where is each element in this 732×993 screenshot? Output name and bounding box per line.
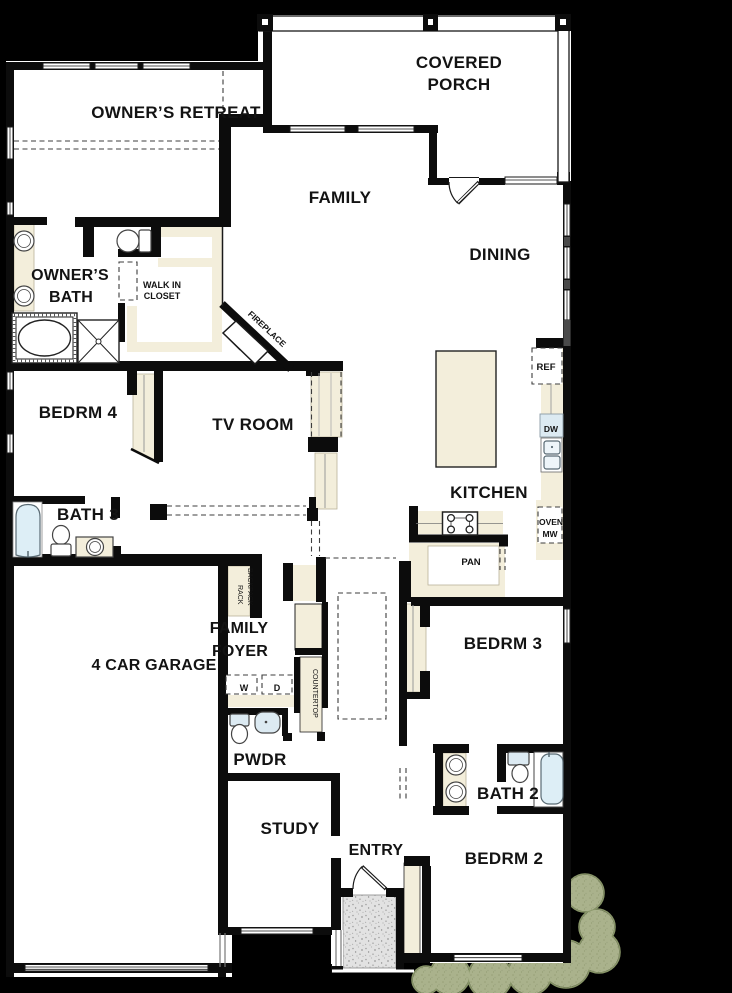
svg-text:MW: MW	[542, 529, 558, 539]
svg-text:FAMILY: FAMILY	[309, 188, 372, 207]
svg-text:BEDRM 3: BEDRM 3	[464, 634, 543, 653]
svg-text:BATH 3: BATH 3	[57, 505, 119, 524]
svg-text:DINING: DINING	[469, 245, 530, 264]
svg-text:BEDRM 2: BEDRM 2	[465, 849, 544, 868]
svg-text:D: D	[274, 683, 281, 693]
svg-text:RACK: RACK	[236, 585, 243, 605]
svg-text:OVEN: OVEN	[539, 517, 563, 527]
svg-text:FOYER: FOYER	[212, 643, 268, 660]
svg-text:CLOSET: CLOSET	[144, 291, 181, 301]
svg-text:COUNTERTOP: COUNTERTOP	[311, 669, 318, 718]
svg-text:PWDR: PWDR	[233, 750, 286, 769]
svg-text:DW: DW	[544, 424, 559, 434]
svg-text:TV ROOM: TV ROOM	[212, 415, 293, 434]
svg-text:COVERED: COVERED	[416, 53, 502, 72]
svg-text:KITCHEN: KITCHEN	[450, 483, 528, 502]
svg-text:PAN: PAN	[461, 557, 480, 568]
svg-text:W: W	[240, 683, 249, 693]
svg-text:BACKPACK: BACKPACK	[246, 568, 253, 606]
svg-text:WALK IN: WALK IN	[143, 280, 181, 290]
svg-text:OWNER’S RETREAT: OWNER’S RETREAT	[91, 103, 261, 122]
svg-text:ENTRY: ENTRY	[349, 842, 404, 859]
svg-text:4 CAR GARAGE: 4 CAR GARAGE	[91, 657, 216, 674]
svg-text:STUDY: STUDY	[260, 819, 319, 838]
svg-text:BATH 2: BATH 2	[477, 784, 539, 803]
svg-text:BATH: BATH	[49, 289, 93, 306]
svg-text:BEDRM 4: BEDRM 4	[39, 403, 118, 422]
svg-text:PORCH: PORCH	[428, 75, 491, 94]
svg-text:FAMILY: FAMILY	[210, 620, 269, 637]
svg-text:OWNER’S: OWNER’S	[31, 267, 109, 284]
svg-text:REF: REF	[537, 362, 556, 373]
